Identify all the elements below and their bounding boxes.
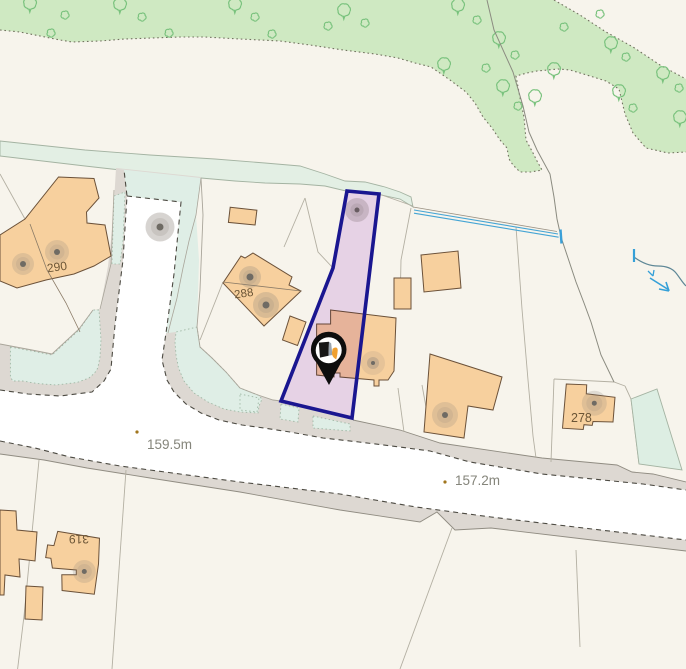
svg-text:157.2m: 157.2m	[455, 473, 500, 488]
svg-text:290: 290	[46, 259, 68, 276]
svg-text:319: 319	[69, 532, 89, 546]
svg-text:159.5m: 159.5m	[147, 437, 192, 452]
svg-text:278: 278	[571, 411, 592, 425]
